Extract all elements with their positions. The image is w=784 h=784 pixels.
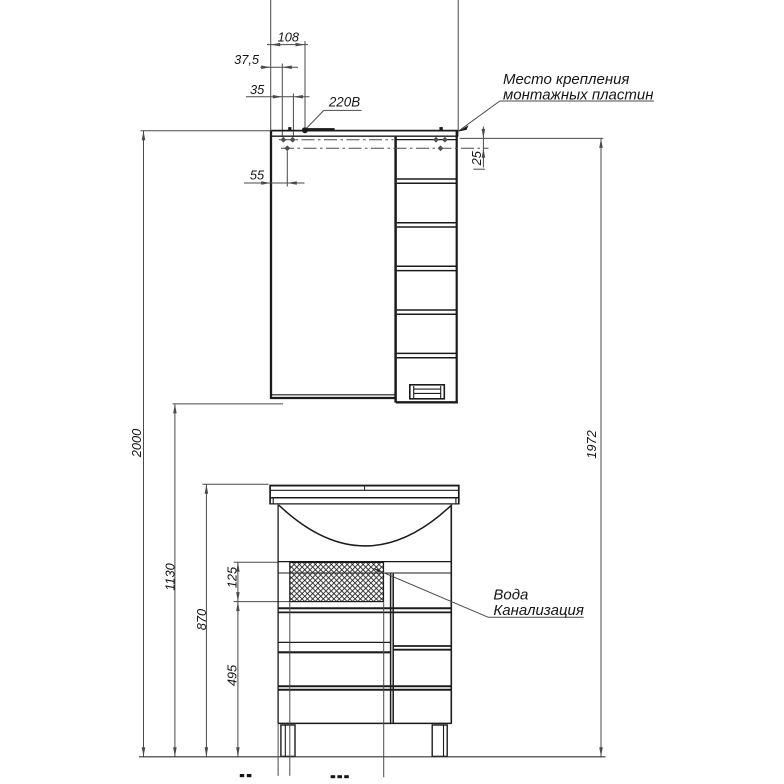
svg-text:495: 495: [225, 664, 240, 686]
svg-text:37,5: 37,5: [234, 52, 260, 67]
svg-text:55: 55: [250, 167, 265, 182]
svg-text:25: 25: [469, 150, 484, 166]
svg-text:108: 108: [278, 30, 300, 45]
svg-text:1130: 1130: [162, 562, 177, 590]
svg-text:220В: 220В: [328, 95, 360, 110]
svg-text:35: 35: [250, 82, 265, 97]
svg-text:Канализация: Канализация: [493, 602, 584, 619]
svg-text:870: 870: [194, 608, 209, 630]
svg-text:1972: 1972: [584, 430, 599, 458]
svg-text:2000: 2000: [129, 428, 144, 458]
svg-text:125: 125: [225, 566, 240, 588]
svg-text:Вода: Вода: [493, 586, 528, 603]
